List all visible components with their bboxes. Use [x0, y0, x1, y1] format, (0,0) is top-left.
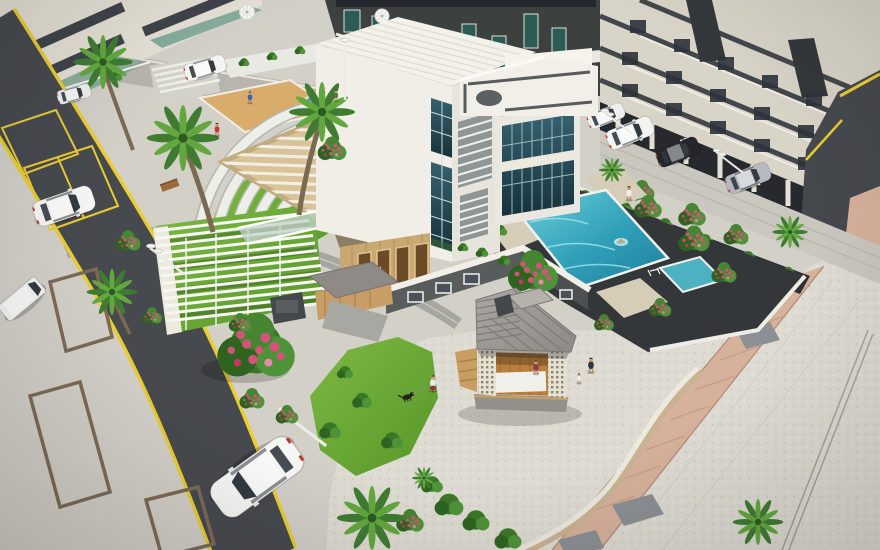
louver-vent-panels	[458, 112, 492, 242]
umbrella-icon	[240, 5, 255, 20]
tower-windows	[431, 98, 453, 252]
swimmer	[614, 238, 628, 246]
render-stage: Aerial 3D architectural rendering of a r…	[0, 0, 880, 550]
terrace-circle-motif	[476, 90, 502, 106]
aerial-render: Aerial 3D architectural rendering of a r…	[0, 0, 880, 550]
